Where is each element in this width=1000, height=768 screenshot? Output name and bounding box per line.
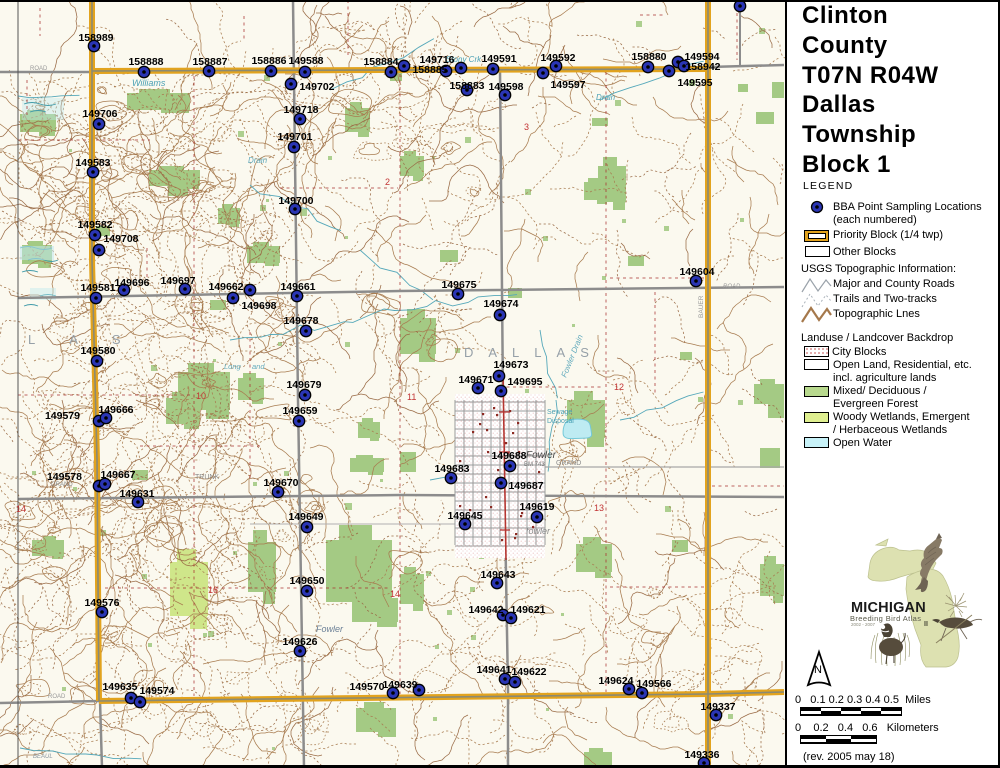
svg-text:and: and: [252, 362, 265, 371]
svg-text:TRUNK: TRUNK: [195, 474, 219, 481]
svg-text:149667: 149667: [100, 469, 135, 481]
svg-text:158885: 158885: [412, 64, 447, 76]
svg-text:149718: 149718: [283, 104, 318, 116]
svg-text:Williams: Williams: [132, 78, 166, 88]
svg-text:149643: 149643: [480, 569, 515, 581]
svg-text:149650: 149650: [289, 575, 324, 587]
svg-text:149661: 149661: [280, 281, 315, 293]
svg-text:fowler: fowler: [526, 526, 551, 536]
svg-text:149598: 149598: [488, 81, 523, 93]
svg-text:2002 - 2007: 2002 - 2007: [851, 622, 876, 627]
svg-text:158942: 158942: [685, 61, 720, 73]
svg-text:149696: 149696: [114, 277, 149, 289]
svg-text:149695: 149695: [507, 376, 542, 388]
svg-text:158886: 158886: [251, 55, 286, 67]
svg-text:149670: 149670: [263, 477, 298, 489]
svg-text:149688: 149688: [491, 450, 526, 462]
svg-text:149706: 149706: [82, 108, 117, 120]
svg-text:149678: 149678: [283, 315, 318, 327]
svg-text:10: 10: [196, 391, 206, 401]
svg-text:149683: 149683: [434, 463, 469, 475]
svg-text:ROAD: ROAD: [30, 66, 48, 72]
svg-text:149697: 149697: [160, 275, 195, 287]
svg-text:DALLAS: DALLAS: [464, 345, 604, 360]
svg-text:149662: 149662: [208, 281, 243, 293]
svg-text:149583: 149583: [75, 157, 110, 169]
svg-text:ROAD: ROAD: [48, 694, 66, 700]
svg-text:16: 16: [208, 585, 218, 595]
svg-text:149659: 149659: [282, 405, 317, 417]
svg-text:149671: 149671: [458, 374, 493, 386]
svg-text:149698: 149698: [241, 300, 276, 312]
svg-text:158887: 158887: [192, 56, 227, 68]
svg-text:149626: 149626: [282, 636, 317, 648]
svg-text:149570: 149570: [349, 681, 384, 693]
svg-text:149591: 149591: [481, 53, 516, 65]
svg-text:149336: 149336: [684, 749, 719, 761]
svg-text:14: 14: [16, 504, 26, 514]
svg-text:2: 2: [385, 177, 390, 187]
svg-text:158888: 158888: [128, 56, 163, 68]
svg-text:149621: 149621: [510, 604, 545, 616]
svg-text:158989: 158989: [78, 32, 113, 44]
svg-text:13: 13: [594, 503, 604, 513]
svg-text:149337: 149337: [700, 701, 735, 713]
svg-text:149579: 149579: [45, 410, 80, 422]
svg-text:BEAUL: BEAUL: [33, 754, 53, 760]
svg-text:149574: 149574: [139, 685, 174, 697]
svg-text:149635: 149635: [102, 681, 137, 693]
svg-text:14: 14: [390, 589, 400, 599]
svg-text:149597: 149597: [550, 79, 585, 91]
svg-text:149641: 149641: [476, 664, 511, 676]
svg-text:158883: 158883: [449, 80, 484, 92]
svg-text:149645: 149645: [447, 510, 482, 522]
svg-text:149639: 149639: [382, 679, 417, 691]
svg-text:149649: 149649: [288, 511, 323, 523]
svg-text:N: N: [814, 664, 822, 676]
svg-text:BAUER: BAUER: [698, 295, 705, 318]
svg-text:149582: 149582: [77, 219, 112, 231]
svg-text:149604: 149604: [679, 266, 714, 278]
svg-text:GRAND: GRAND: [556, 460, 581, 467]
svg-text:Disposal: Disposal: [547, 418, 574, 425]
svg-text:149592: 149592: [540, 52, 575, 64]
svg-text:158884: 158884: [363, 56, 398, 68]
svg-text:149588: 149588: [288, 55, 323, 67]
svg-text:12: 12: [614, 382, 624, 392]
svg-text:149687: 149687: [508, 480, 543, 492]
svg-text:Fowler: Fowler: [316, 624, 344, 634]
svg-text:158880: 158880: [631, 51, 666, 63]
svg-text:149619: 149619: [519, 501, 554, 513]
svg-text:149566: 149566: [636, 678, 671, 690]
svg-text:149679: 149679: [286, 379, 321, 391]
svg-text:149701: 149701: [277, 131, 312, 143]
svg-text:149578: 149578: [47, 471, 82, 483]
svg-text:Sewage: Sewage: [547, 409, 572, 416]
svg-text:II: II: [924, 621, 928, 628]
svg-text:149700: 149700: [278, 195, 313, 207]
svg-text:149631: 149631: [119, 488, 154, 500]
svg-text:149675: 149675: [441, 279, 476, 291]
svg-text:Drain: Drain: [248, 156, 268, 165]
svg-text:149674: 149674: [483, 298, 518, 310]
svg-text:BM 743: BM 743: [524, 462, 545, 468]
svg-text:149595: 149595: [677, 77, 712, 89]
svg-text:Fowler: Fowler: [526, 450, 557, 461]
svg-text:149642: 149642: [468, 604, 503, 616]
svg-text:ROAD: ROAD: [723, 284, 741, 290]
svg-text:149624: 149624: [598, 675, 633, 687]
svg-text:149580: 149580: [80, 345, 115, 357]
svg-text:149702: 149702: [299, 81, 334, 93]
svg-text:149673: 149673: [493, 359, 528, 371]
svg-text:149622: 149622: [511, 666, 546, 678]
svg-text:Long: Long: [224, 362, 242, 371]
svg-text:149581: 149581: [80, 282, 115, 294]
svg-text:149708: 149708: [103, 233, 138, 245]
svg-text:11: 11: [407, 392, 416, 402]
svg-text:Drain: Drain: [596, 93, 616, 102]
svg-text:149576: 149576: [84, 597, 119, 609]
svg-text:3: 3: [524, 122, 529, 132]
svg-text:149666: 149666: [98, 404, 133, 416]
